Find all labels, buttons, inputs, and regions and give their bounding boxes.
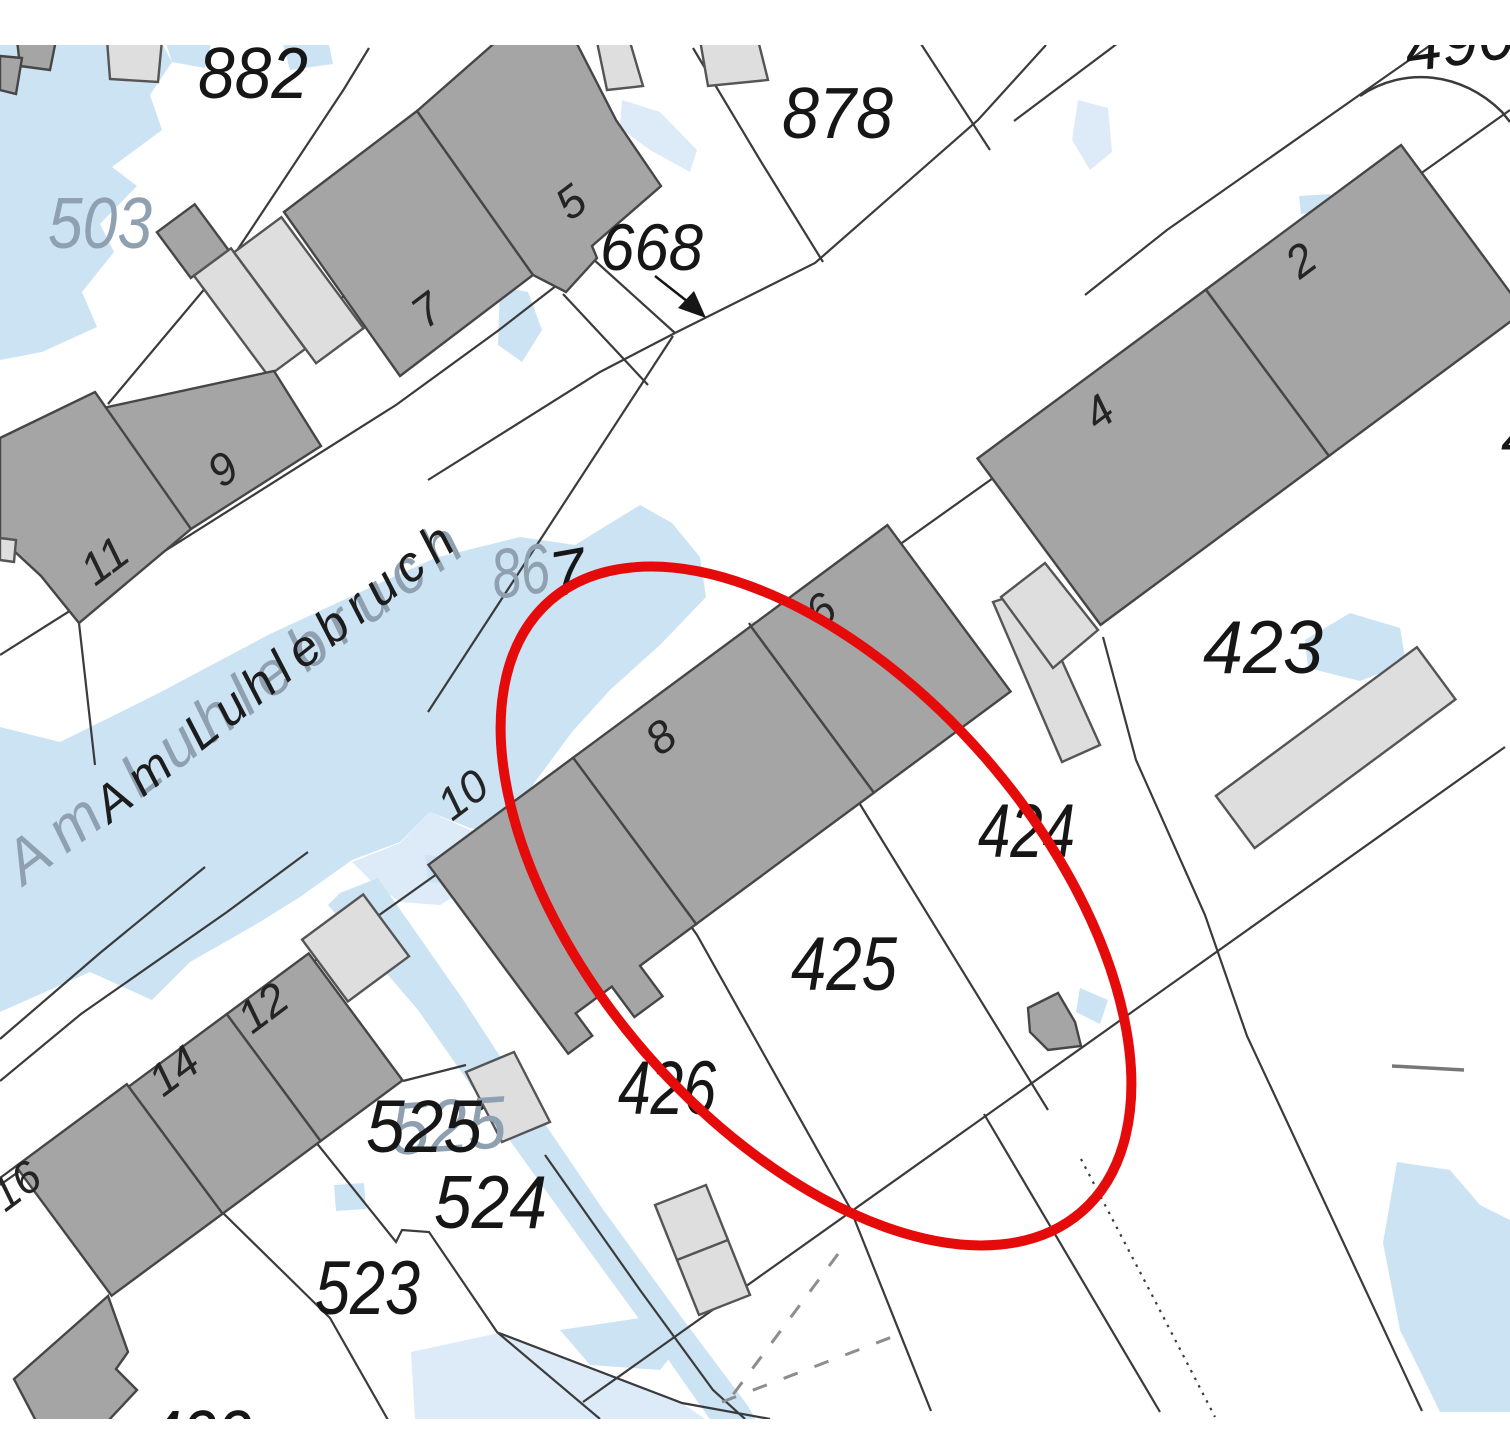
svg-text:4: 4 xyxy=(1501,400,1510,474)
svg-text:878: 878 xyxy=(782,74,893,154)
svg-text:523: 523 xyxy=(315,1246,420,1331)
svg-text:525: 525 xyxy=(366,1085,483,1168)
svg-text:423: 423 xyxy=(1203,605,1323,689)
svg-text:882: 882 xyxy=(198,34,308,114)
svg-text:668: 668 xyxy=(600,210,703,284)
svg-text:426: 426 xyxy=(618,1046,717,1131)
svg-text:425: 425 xyxy=(791,922,898,1007)
svg-text:503: 503 xyxy=(48,184,152,264)
svg-text:524: 524 xyxy=(434,1160,547,1244)
